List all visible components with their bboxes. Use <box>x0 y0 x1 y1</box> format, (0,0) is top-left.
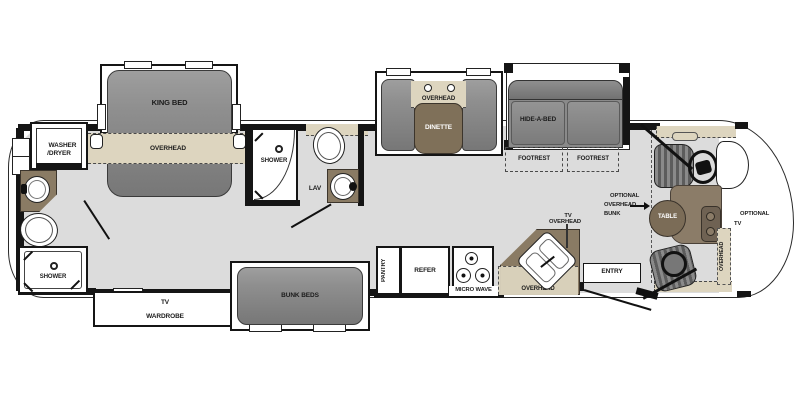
footrest-left-label: FOOTREST <box>505 156 563 163</box>
window-rear-1 <box>12 138 30 157</box>
washer-shelf <box>36 163 82 168</box>
rear-bath-faucet <box>21 184 27 194</box>
dinette-bench-right <box>462 79 497 151</box>
bunk-slide-window-2 <box>313 324 346 332</box>
lav-faucet <box>349 182 357 191</box>
wall-top-front-mark <box>735 122 748 129</box>
optional-bunk-arrow-shaft <box>630 205 644 207</box>
dinette-table-label: DINETTE <box>414 124 463 131</box>
cab-overhead-label: OVERHEAD <box>719 231 729 282</box>
tv-overhead-label: TVOVERHEAD <box>544 206 586 226</box>
microwave-label: MICRO WAVE <box>446 287 501 294</box>
dinette-bench-left <box>381 79 415 151</box>
burner-3 <box>475 268 490 283</box>
sofa-cushion-right <box>567 101 620 145</box>
mid-shower-label: SHOWER <box>249 158 299 165</box>
rear-bath-sink-inner <box>28 180 46 199</box>
dinette-cupholder-1 <box>424 84 432 92</box>
sofa-frame-corner-tl <box>504 63 513 73</box>
rear-shower-drain <box>50 262 58 270</box>
burner-1 <box>465 252 478 265</box>
front-overhead-tab <box>672 132 698 141</box>
pantry-label: PANTRY <box>381 250 396 291</box>
wall-bottom-front-mark <box>737 291 751 297</box>
tv-overhead-pointer <box>566 224 568 248</box>
wardrobe-tv-unit <box>93 291 237 327</box>
king-bed-label: KING BED <box>107 99 232 108</box>
entry-label: ENTRY <box>583 268 641 275</box>
refer-label: REFER <box>400 267 450 274</box>
mid-shower-drain <box>275 145 283 153</box>
dinette-overhead-label: OVERHEAD <box>411 96 466 103</box>
wardrobe-tv-label: TV <box>93 299 237 306</box>
dinette-slide-window-1 <box>386 68 411 76</box>
optional-bunk-arrow-head <box>644 202 650 210</box>
king-slide-window-right <box>232 104 241 130</box>
desk-chair-ring-1 <box>706 212 715 221</box>
bunk-slide-window-1 <box>249 324 282 332</box>
wardrobe-label: WARDROBE <box>93 313 237 320</box>
burner-2 <box>456 268 471 283</box>
rear-shower-label: SHOWER <box>25 274 81 281</box>
dinette-cupholder-2 <box>447 84 455 92</box>
lav-label: LAV <box>303 185 327 192</box>
king-slide-window-1 <box>124 61 152 69</box>
footrest-right-label: FOOTREST <box>567 156 619 163</box>
sofa-frame-corner-tr <box>619 63 630 73</box>
king-slide-window-left <box>97 104 106 130</box>
king-slide-window-2 <box>185 61 213 69</box>
pedestal-table-label: TABLE <box>649 214 686 221</box>
washer-dryer-label: WASHER/DRYER <box>34 135 84 157</box>
optional-tv-label: OPTIONALTV <box>734 201 774 229</box>
dinette-slide-window-2 <box>466 68 491 76</box>
bedroom-overhead-label: OVERHEAD <box>88 145 248 152</box>
sofa-frame-edge-right <box>623 77 630 145</box>
desk-chair-ring-2 <box>706 227 715 236</box>
optional-overhead-bunk-label: OPTIONALOVERHEADBUNK <box>604 183 648 219</box>
sofa-label: HIDE-A-BED <box>503 116 573 123</box>
bed-bracket-left <box>90 134 103 149</box>
rv-floor-plan: WASHER/DRYER SHOWER KING BED OVERHEAD TV… <box>0 0 800 400</box>
bunk-beds-label: BUNK BEDS <box>237 292 363 299</box>
galley-overhead-label: OVERHEAD <box>498 286 578 293</box>
